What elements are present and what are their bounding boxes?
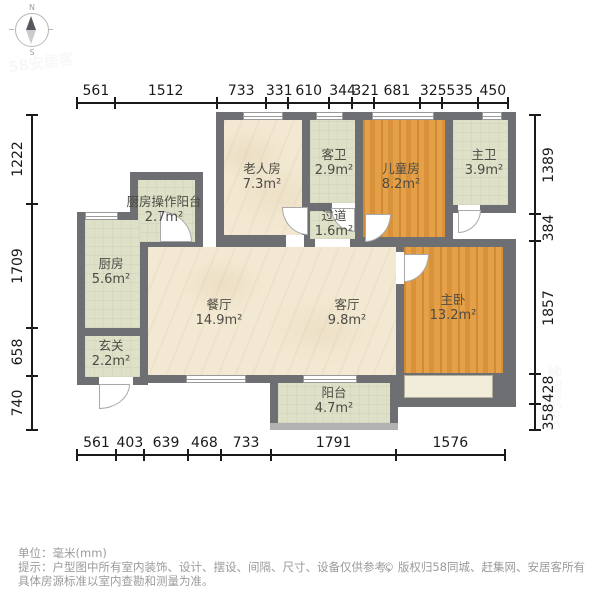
- room-name: 儿童房: [361, 161, 441, 177]
- room-name: 玄关: [81, 338, 141, 354]
- room-name: 厨房: [81, 256, 141, 272]
- ruler-tick: [26, 203, 38, 205]
- dim-label-right: 1857: [541, 278, 557, 338]
- dim-label-left: 1222: [10, 129, 26, 189]
- room-label-kitchen: 厨房5.6m²: [81, 256, 141, 288]
- ruler-tick: [26, 429, 38, 431]
- room-label-guest-bathroom: 客卫2.9m²: [304, 147, 364, 179]
- dim-label-left: 1709: [10, 236, 26, 296]
- wall-opening: [203, 112, 216, 250]
- dim-label-left: 740: [10, 373, 26, 433]
- compass-needle-north-icon: [26, 16, 36, 30]
- dim-label-top: 535: [442, 83, 478, 99]
- compass-north-label: N: [8, 3, 56, 12]
- room-area: 5.6m²: [81, 272, 141, 288]
- room-area: 14.9m²: [174, 313, 264, 329]
- ruler-tick: [26, 327, 38, 329]
- dim-label-top: 331: [266, 83, 288, 99]
- window: [186, 375, 246, 383]
- dim-label-top: 733: [217, 83, 266, 99]
- dim-label-bottom: 1791: [271, 435, 395, 451]
- dim-label-top: 325: [420, 83, 442, 99]
- room-area: 7.3m²: [222, 177, 302, 193]
- room-label-elder-room: 老人房7.3m²: [222, 161, 302, 193]
- window: [482, 112, 502, 120]
- room-area: 2.7m²: [114, 210, 214, 226]
- compass-tick-right: [48, 29, 53, 30]
- dim-label-bottom: 468: [188, 435, 220, 451]
- room-area: 1.6m²: [304, 224, 364, 240]
- wall-opening: [396, 252, 404, 284]
- room-name: 主卫: [454, 147, 514, 163]
- floorplan-stage: N S 厨房操作阳台2.7m²老人房7.3m²客卫2.9m²儿童房8.2m²主卫…: [0, 0, 600, 600]
- ruler-line-top: [77, 102, 508, 104]
- dim-label-right: 384: [541, 198, 557, 258]
- room-label-hallway: 过道1.6m²: [304, 208, 364, 240]
- ruler-tick: [529, 213, 541, 215]
- ruler-tick: [529, 240, 541, 242]
- room-area: 2.2m²: [81, 354, 141, 370]
- dim-label-top: 561: [77, 83, 115, 99]
- room-label-children-room: 儿童房8.2m²: [361, 161, 441, 193]
- ruler-tick: [529, 114, 541, 116]
- window: [372, 112, 434, 120]
- room-label-living-room: 客厅9.8m²: [302, 297, 392, 329]
- room-name: 客卫: [304, 147, 364, 163]
- room-area: 9.8m²: [302, 313, 392, 329]
- room-name: 主卧: [408, 292, 498, 308]
- ruler-tick: [26, 375, 38, 377]
- compass-tick-left: [9, 29, 14, 30]
- room-name: 厨房操作阳台: [114, 194, 214, 210]
- window: [243, 112, 283, 120]
- dim-label-right: 1389: [541, 135, 557, 195]
- dim-label-bottom: 561: [77, 435, 116, 451]
- room-label-balcony: 阳台4.7m²: [294, 385, 374, 417]
- dim-label-bottom: 733: [221, 435, 272, 451]
- window: [316, 112, 343, 120]
- room-area: 13.2m²: [408, 308, 498, 324]
- room-name: 餐厅: [174, 297, 264, 313]
- compass-needle-south-icon: [26, 30, 36, 44]
- disclaimer-line2: 具体房源标准以室内查勘和测量为准。: [18, 574, 214, 588]
- room-label-master-bathroom: 主卫3.9m²: [454, 147, 514, 179]
- room-name: 阳台: [294, 385, 374, 401]
- copyright-notice: © 版权归58同城、赶集网、安居客所有: [383, 560, 585, 574]
- ruler-tick: [26, 114, 38, 116]
- dim-label-top: 321: [352, 83, 374, 99]
- room-label-master-bedroom: 主卧13.2m²: [408, 292, 498, 324]
- ruler-tick: [529, 373, 541, 375]
- dim-label-top: 344: [329, 83, 352, 99]
- room-label-dining-room: 餐厅14.9m²: [174, 297, 264, 329]
- floorplan-page: { "colors": { "wall": "#6d6f72", "cream"…: [0, 0, 600, 600]
- room-name: 老人房: [222, 161, 302, 177]
- dim-label-bottom: 1576: [396, 435, 505, 451]
- ruler-tick: [529, 429, 541, 431]
- room-area: 4.7m²: [294, 401, 374, 417]
- bay-window: [404, 375, 493, 398]
- ruler-line-bottom: [77, 454, 505, 456]
- dim-label-top: 610: [288, 83, 329, 99]
- ruler-tick: [529, 403, 541, 405]
- wall-opening: [286, 235, 304, 247]
- room-name: 客厅: [302, 297, 392, 313]
- room-area: 2.9m²: [304, 163, 364, 179]
- ruler-line-right: [534, 115, 536, 430]
- window: [303, 375, 357, 383]
- room-label-kitchen-operation-balcony: 厨房操作阳台2.7m²: [114, 194, 214, 226]
- dim-label-top: 1512: [115, 83, 217, 99]
- balcony-railing: [270, 423, 398, 430]
- wall-opening: [315, 239, 350, 247]
- room-area: 3.9m²: [454, 163, 514, 179]
- unit-note: 单位：毫米(mm): [18, 546, 107, 560]
- dim-label-bottom: 403: [116, 435, 144, 451]
- room-label-entry: 玄关2.2m²: [81, 338, 141, 370]
- door-arc-icon: [99, 384, 130, 409]
- dim-label-bottom: 639: [144, 435, 188, 451]
- room-name: 过道: [304, 208, 364, 224]
- watermark-58anjuke: 58安居客: [544, 364, 565, 430]
- dim-label-top: 681: [374, 83, 420, 99]
- room-area: 8.2m²: [361, 177, 441, 193]
- dim-label-top: 450: [478, 83, 508, 99]
- ruler-line-left: [31, 115, 33, 430]
- disclaimer-line1: 提示：户型图中所有室内装饰、设计、摆设、间隔、尺寸、设备仅供参考，: [18, 560, 398, 574]
